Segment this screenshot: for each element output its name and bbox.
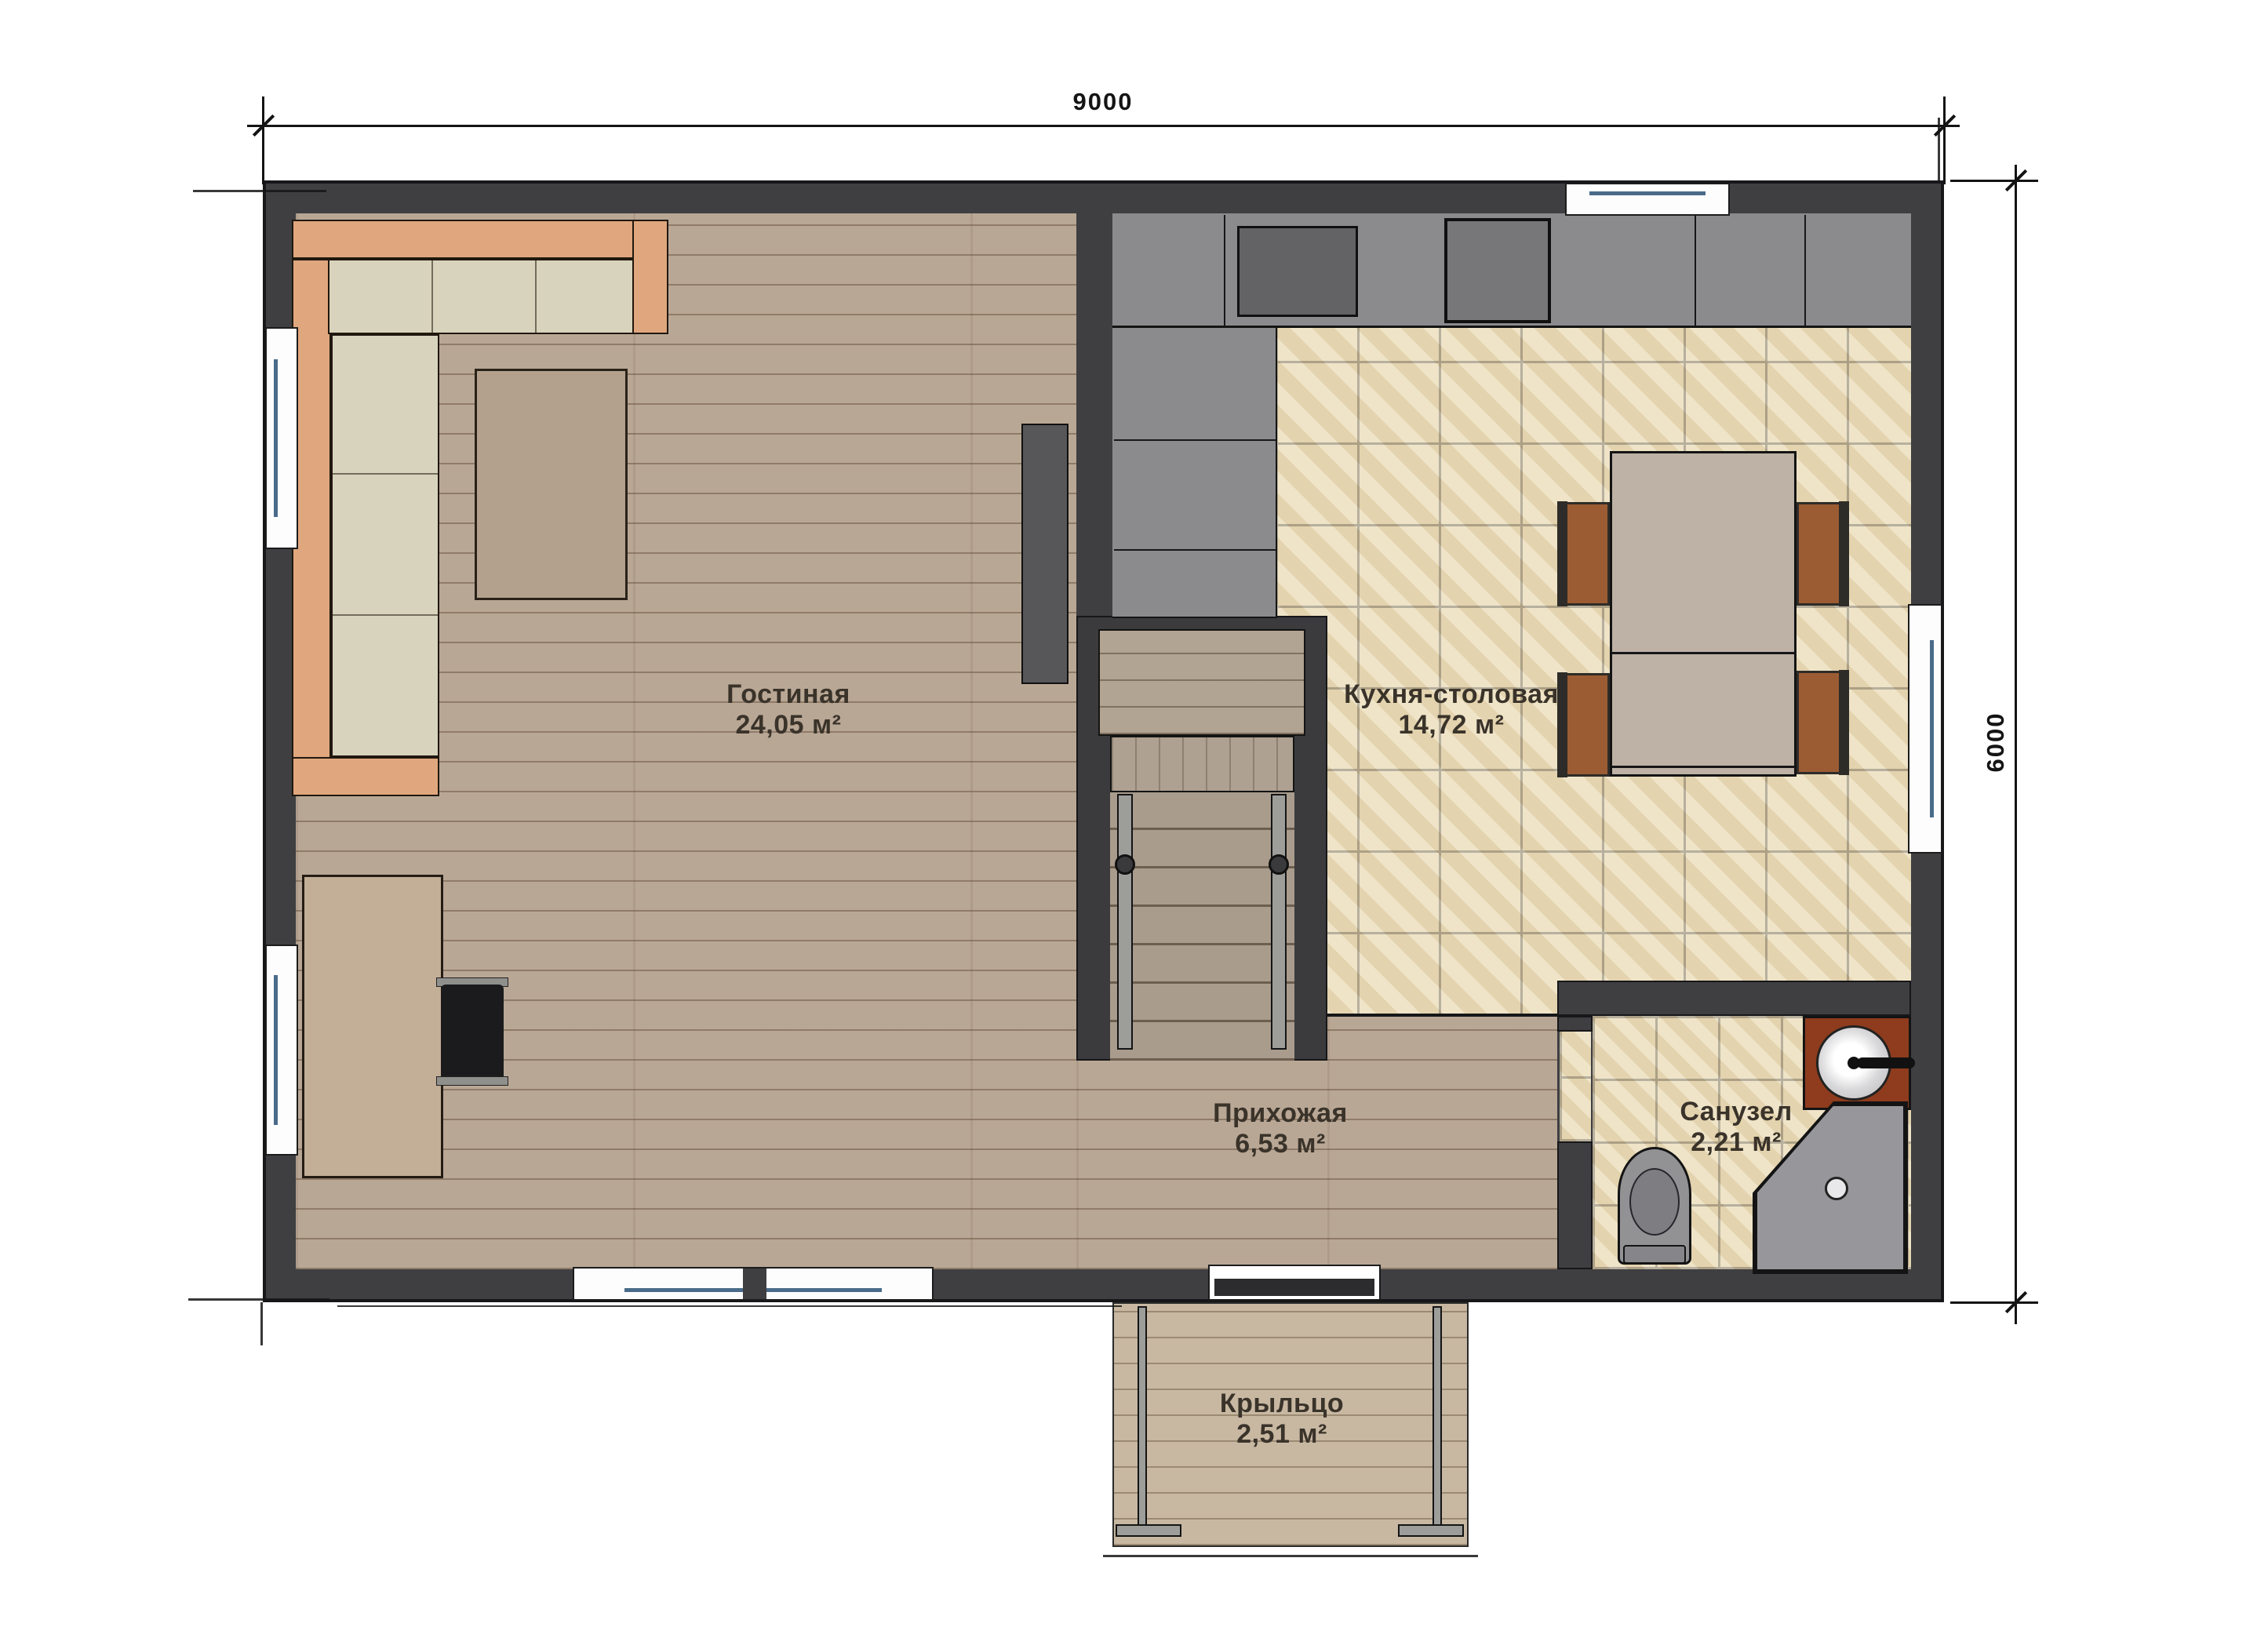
extension-line: [1943, 96, 1946, 184]
room-label-porch: Крыльцо 2,51 м²: [1220, 1389, 1344, 1450]
bathroom-top-wall: [1557, 981, 1911, 1016]
cushion-seam: [431, 260, 433, 333]
room-area: 24,05 м²: [726, 710, 850, 741]
bathroom-left-wall-upper: [1557, 1016, 1593, 1032]
dimension-line-top: [247, 125, 1960, 127]
hallway-floor-right: [1327, 1016, 1557, 1269]
window-glass: [1589, 191, 1706, 195]
toilet-tank: [1623, 1245, 1686, 1264]
counter-seam: [1224, 215, 1225, 326]
sink-vanity: [1803, 1016, 1911, 1110]
sofa-back-top: [292, 220, 668, 259]
stair-railing-right: [1271, 794, 1287, 1050]
chair-back: [1839, 670, 1849, 775]
stair-railing-left: [1117, 794, 1133, 1050]
table-leaf-seam: [1612, 652, 1794, 654]
counter-seam: [1114, 549, 1276, 551]
room-area: 6,53 м²: [1213, 1129, 1348, 1159]
faucet: [1857, 1057, 1915, 1068]
cushion-seam: [333, 614, 438, 616]
room-area: 2,21 м²: [1680, 1127, 1792, 1158]
dining-chair: [1797, 671, 1847, 774]
desk: [302, 875, 443, 1178]
kitchen-hallway-threshold: [1327, 1014, 1557, 1017]
chair-back: [1557, 501, 1567, 606]
sofa-armrest-right: [632, 220, 668, 334]
room-label-bathroom: Санузел 2,21 м²: [1680, 1097, 1792, 1158]
stair-upper-landing: [1098, 629, 1305, 736]
dining-chair: [1560, 673, 1610, 777]
hallway-floor-under-stairs: [1076, 1061, 1327, 1269]
tv-console: [1021, 424, 1068, 684]
extension-line: [1950, 1301, 2038, 1304]
porch-rail-foot-right: [1398, 1524, 1464, 1537]
room-name: Крыльцо: [1220, 1389, 1344, 1419]
entry-door-leaf: [1214, 1279, 1374, 1296]
fridge: [1444, 218, 1551, 323]
room-area: 2,51 м²: [1220, 1419, 1344, 1450]
table-leaf-seam: [1612, 766, 1794, 768]
floor-plan: 9000 6000 Гостиная 24,05 м² Кухня-столов…: [0, 0, 2268, 1638]
chair-back: [1839, 501, 1849, 606]
bathroom-left-wall-lower: [1557, 1141, 1593, 1269]
dining-table: [1610, 451, 1797, 777]
sketch-line: [337, 1305, 1122, 1307]
extension-line: [262, 96, 264, 184]
toilet-bowl: [1629, 1168, 1680, 1236]
bathroom-door-opening: [1560, 1032, 1591, 1141]
dimension-height-label: 6000: [1982, 656, 2010, 828]
dining-chair: [1797, 502, 1847, 606]
desk-chair: [441, 985, 504, 1081]
sketch-line: [188, 1298, 329, 1301]
room-area: 14,72 м²: [1344, 710, 1559, 741]
porch-rail-foot-left: [1116, 1524, 1181, 1537]
porch-step-edge: [1103, 1555, 1478, 1557]
coffee-table: [475, 369, 628, 600]
window-left-upper: [265, 327, 298, 549]
sofa-cushions-top: [328, 259, 634, 334]
room-label-hallway: Прихожая 6,53 м²: [1213, 1098, 1348, 1159]
dimension-width-label: 9000: [1017, 88, 1189, 116]
window-mullion: [743, 1269, 766, 1299]
window-glass: [1930, 640, 1934, 817]
counter-seam: [1695, 215, 1696, 326]
shower-drain: [1825, 1177, 1848, 1200]
toilet: [1618, 1147, 1691, 1265]
sketch-line: [260, 1302, 263, 1345]
stair-post-right: [1269, 854, 1289, 875]
porch-railing-left: [1138, 1306, 1147, 1527]
sofa-armrest-bottom: [292, 757, 439, 796]
room-name: Гостиная: [726, 679, 850, 710]
stair-run: [1110, 792, 1294, 1061]
window-left-lower: [265, 945, 298, 1156]
window-bottom-double: [573, 1267, 934, 1301]
stair-post-left: [1115, 854, 1135, 875]
window-glass: [274, 975, 278, 1125]
cushion-seam: [535, 260, 537, 333]
desk-chair-frame: [436, 1076, 508, 1086]
counter-seam: [1804, 215, 1806, 326]
kitchen-counter-left: [1112, 328, 1277, 618]
stair-mid-landing: [1110, 736, 1294, 792]
room-name: Кухня-столовая: [1344, 679, 1559, 710]
cushion-seam: [333, 473, 438, 475]
window-top-kitchen: [1565, 183, 1730, 216]
porch-railing-right: [1433, 1306, 1442, 1527]
dining-chair: [1560, 502, 1610, 606]
dimension-line-right: [2015, 165, 2017, 1324]
window-right: [1908, 604, 1942, 854]
cooktop: [1237, 226, 1358, 317]
room-label-living: Гостиная 24,05 м²: [726, 679, 850, 741]
extension-line: [1950, 180, 2038, 182]
room-name: Прихожая: [1213, 1098, 1348, 1129]
room-name: Санузел: [1680, 1097, 1792, 1127]
room-label-kitchen: Кухня-столовая 14,72 м²: [1344, 679, 1559, 741]
counter-seam: [1114, 439, 1276, 441]
sketch-line: [193, 190, 326, 192]
chair-back: [1557, 672, 1567, 777]
window-glass: [274, 359, 278, 517]
sofa-cushions-left: [331, 334, 439, 757]
